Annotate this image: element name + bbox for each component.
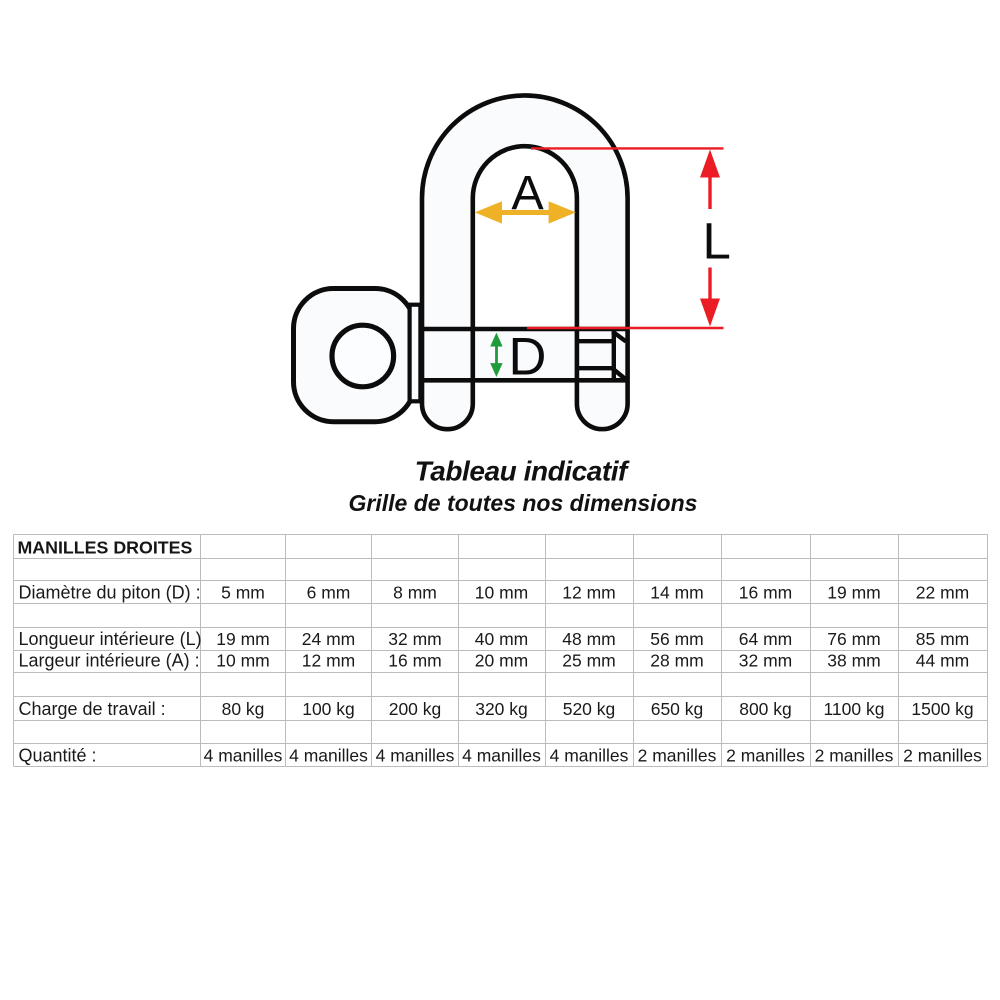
svg-text:32 mm: 32 mm bbox=[388, 629, 441, 649]
svg-text:8 mm: 8 mm bbox=[393, 583, 437, 603]
svg-text:40 mm: 40 mm bbox=[475, 629, 528, 649]
svg-text:25 mm: 25 mm bbox=[562, 651, 615, 671]
svg-text:650 kg: 650 kg bbox=[651, 699, 704, 719]
svg-text:12 mm: 12 mm bbox=[302, 651, 355, 671]
svg-text:4 manilles: 4 manilles bbox=[462, 746, 541, 766]
svg-text:64 mm: 64 mm bbox=[739, 629, 792, 649]
svg-text:80 kg: 80 kg bbox=[222, 699, 265, 719]
svg-text:1100 kg: 1100 kg bbox=[824, 699, 885, 719]
svg-text:4 manilles: 4 manilles bbox=[550, 746, 629, 766]
svg-text:2 manilles: 2 manilles bbox=[903, 746, 982, 766]
svg-text:Largeur intérieure (A) :: Largeur intérieure (A) : bbox=[19, 651, 200, 671]
svg-text:Quantité :: Quantité : bbox=[19, 746, 97, 766]
svg-text:Longueur intérieure (L): Longueur intérieure (L) bbox=[19, 629, 202, 649]
svg-text:320 kg: 320 kg bbox=[475, 699, 528, 719]
svg-text:800 kg: 800 kg bbox=[739, 699, 792, 719]
svg-text:12 mm: 12 mm bbox=[562, 583, 615, 603]
svg-text:16 mm: 16 mm bbox=[388, 651, 441, 671]
svg-text:22 mm: 22 mm bbox=[916, 583, 969, 603]
svg-text:6 mm: 6 mm bbox=[307, 583, 351, 603]
svg-text:24 mm: 24 mm bbox=[302, 629, 355, 649]
svg-text:10 mm: 10 mm bbox=[216, 651, 269, 671]
svg-text:56 mm: 56 mm bbox=[650, 629, 703, 649]
svg-text:4 manilles: 4 manilles bbox=[204, 746, 283, 766]
svg-text:4 manilles: 4 manilles bbox=[289, 746, 368, 766]
svg-text:L: L bbox=[703, 213, 731, 270]
svg-text:Grille de toutes nos dimension: Grille de toutes nos dimensions bbox=[349, 490, 698, 516]
svg-text:A: A bbox=[511, 166, 544, 220]
svg-text:85 mm: 85 mm bbox=[916, 629, 969, 649]
svg-text:Tableau indicatif: Tableau indicatif bbox=[415, 456, 630, 487]
svg-text:14 mm: 14 mm bbox=[650, 583, 703, 603]
svg-text:44 mm: 44 mm bbox=[916, 651, 969, 671]
svg-text:MANILLES DROITES: MANILLES DROITES bbox=[18, 538, 193, 558]
svg-text:2 manilles: 2 manilles bbox=[638, 746, 717, 766]
svg-text:28 mm: 28 mm bbox=[650, 651, 703, 671]
svg-text:16 mm: 16 mm bbox=[739, 583, 792, 603]
svg-text:5 mm: 5 mm bbox=[221, 583, 265, 603]
svg-text:2 manilles: 2 manilles bbox=[726, 746, 805, 766]
svg-text:38 mm: 38 mm bbox=[827, 651, 880, 671]
svg-text:Diamètre du piton (D) :: Diamètre du piton (D) : bbox=[19, 583, 201, 603]
svg-text:10 mm: 10 mm bbox=[475, 583, 528, 603]
svg-text:Charge de travail :: Charge de travail : bbox=[19, 699, 166, 719]
svg-text:520 kg: 520 kg bbox=[563, 699, 616, 719]
svg-text:19 mm: 19 mm bbox=[827, 583, 880, 603]
svg-text:D: D bbox=[509, 328, 547, 387]
svg-text:20 mm: 20 mm bbox=[475, 651, 528, 671]
svg-text:32 mm: 32 mm bbox=[739, 651, 792, 671]
svg-text:2 manilles: 2 manilles bbox=[815, 746, 894, 766]
svg-text:48 mm: 48 mm bbox=[562, 629, 615, 649]
svg-text:1500 kg: 1500 kg bbox=[911, 699, 973, 719]
svg-text:200 kg: 200 kg bbox=[389, 699, 442, 719]
svg-text:4 manilles: 4 manilles bbox=[376, 746, 455, 766]
svg-text:19 mm: 19 mm bbox=[216, 629, 269, 649]
svg-text:100 kg: 100 kg bbox=[302, 699, 355, 719]
svg-text:76 mm: 76 mm bbox=[827, 629, 880, 649]
